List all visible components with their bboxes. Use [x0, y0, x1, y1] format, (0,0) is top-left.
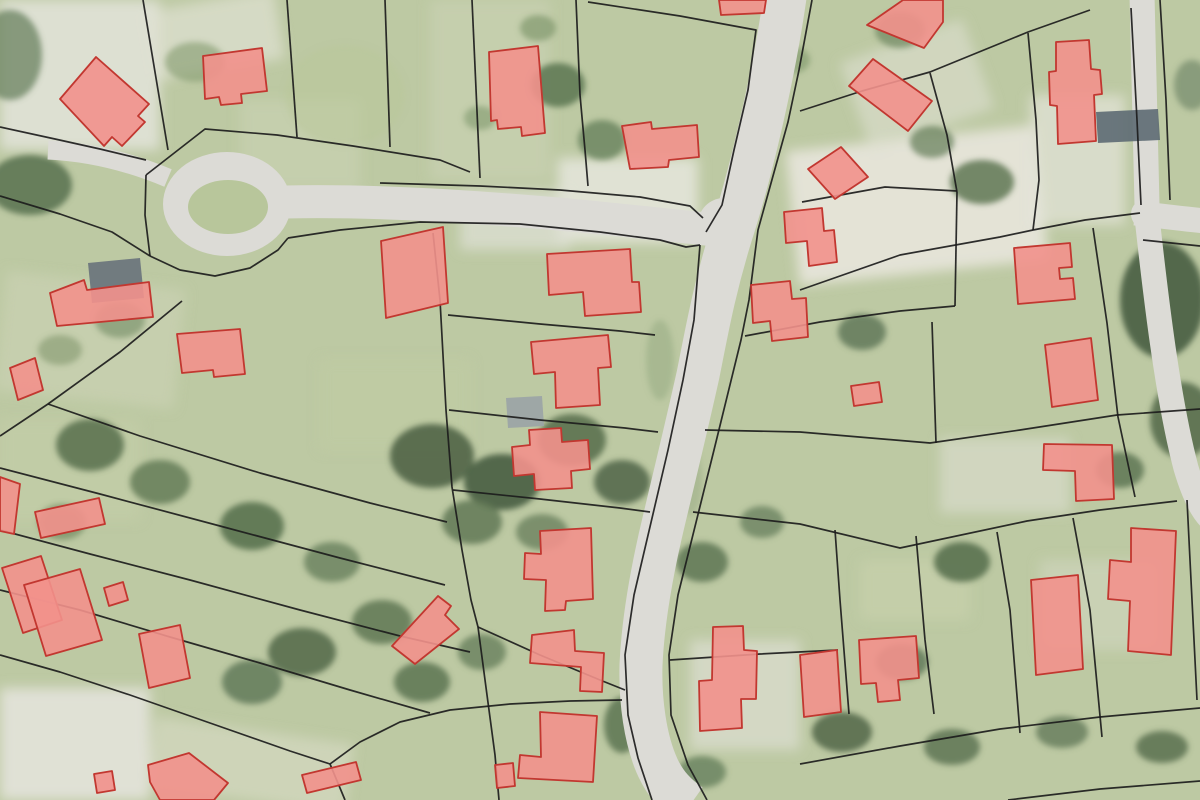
road	[1142, 0, 1147, 205]
building-footprint	[381, 227, 448, 318]
building-footprint	[1045, 338, 1098, 407]
building-footprint	[94, 771, 115, 793]
building-footprint	[177, 329, 245, 377]
tree-canopy	[442, 500, 502, 544]
tree-canopy	[520, 15, 556, 41]
building-footprint	[851, 382, 882, 406]
building-footprint	[719, 0, 766, 15]
aerial-map-canvas[interactable]	[0, 0, 1200, 800]
roof-unhighlighted	[506, 396, 544, 428]
tree-canopy	[220, 502, 284, 550]
terrain-patch	[0, 688, 150, 800]
tree-canopy	[38, 335, 82, 365]
tree-canopy	[646, 320, 674, 400]
tree-canopy	[1136, 731, 1188, 763]
roof-unhighlighted	[1096, 109, 1160, 143]
tree-canopy	[950, 160, 1014, 204]
tree-canopy	[304, 542, 360, 582]
map-viewport	[0, 0, 1200, 800]
tree-canopy	[838, 314, 886, 350]
tree-canopy	[934, 542, 990, 582]
building-footprint	[489, 46, 545, 136]
road-junction	[698, 198, 750, 250]
tree-canopy	[394, 662, 450, 702]
tree-canopy	[594, 460, 650, 504]
tree-canopy	[390, 424, 474, 488]
tree-canopy	[130, 460, 190, 504]
building-footprint	[800, 650, 841, 717]
building-footprint	[1031, 575, 1083, 675]
building-footprint	[495, 763, 515, 788]
cul-de-sac-island	[188, 180, 268, 234]
building-footprint	[139, 625, 190, 688]
tree-canopy	[676, 542, 728, 582]
tree-canopy	[812, 712, 872, 752]
